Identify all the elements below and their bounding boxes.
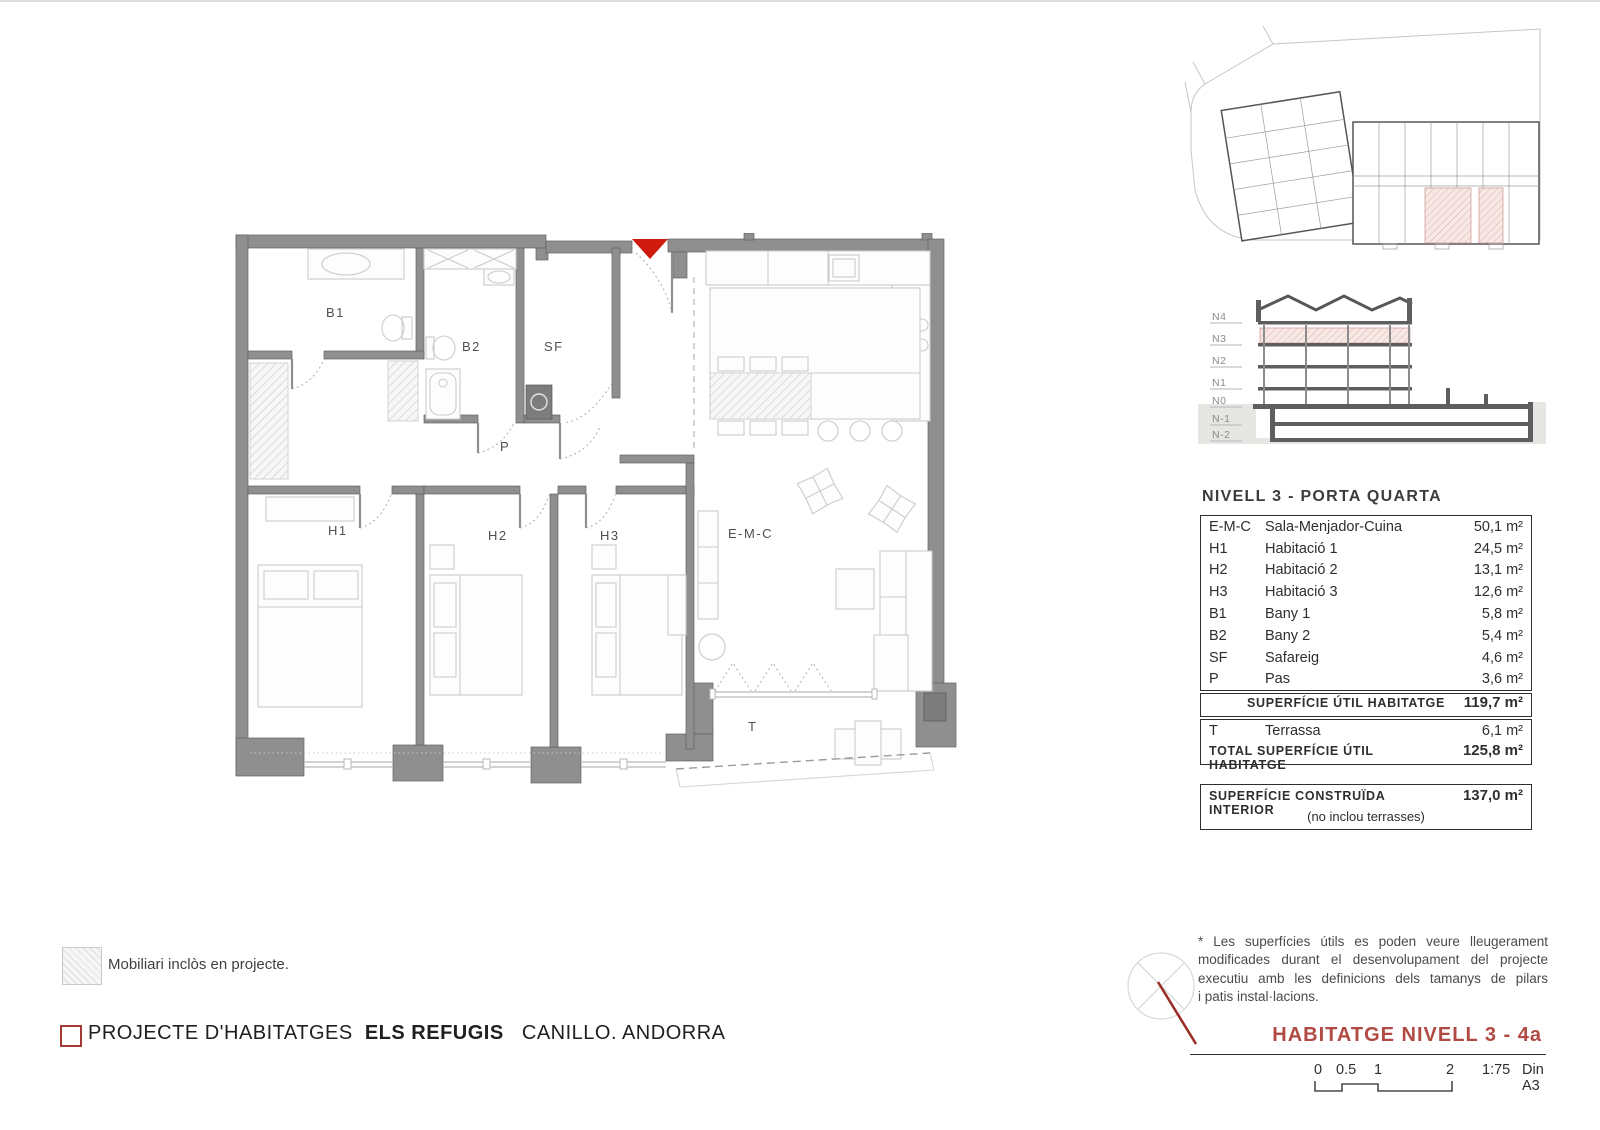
table-row: H2Habitació 213,1 m² — [1201, 560, 1531, 582]
key-plan-highlighted-unit — [1425, 188, 1471, 243]
level-label-n4: N4 — [1212, 311, 1226, 323]
roof-line — [1258, 296, 1412, 310]
bedroom-furniture — [258, 497, 686, 707]
table-row: PPas3,6 m² — [1201, 669, 1531, 691]
scale-ratio: 1:75 — [1482, 1062, 1510, 1078]
floor-plan: B1 B2 SF P H1 H2 H3 E-M-C T — [228, 233, 960, 795]
table-row: SFSafareig4,6 m² — [1201, 647, 1531, 669]
project-title-name: ELS REFUGIS — [365, 1022, 504, 1044]
level-label-n2: N2 — [1212, 355, 1226, 367]
built-area-box: SUPERFÍCIE CONSTRUÏDA INTERIOR 137,0 m² … — [1200, 784, 1532, 830]
area-table: NIVELL 3 - PORTA QUARTA E-M-CSala-Menjad… — [1200, 488, 1532, 830]
table-row: E-M-CSala-Menjador-Cuina50,1 m² — [1201, 516, 1531, 538]
built-area-row: SUPERFÍCIE CONSTRUÏDA INTERIOR 137,0 m² — [1209, 787, 1523, 809]
level-label-n3: N3 — [1212, 333, 1226, 345]
table-row: T Terrassa 6,1 m² — [1201, 720, 1531, 742]
room-label-b1: B1 — [326, 305, 345, 320]
table-row: B1Bany 15,8 m² — [1201, 603, 1531, 625]
room-label-p: P — [500, 439, 510, 454]
key-plan-left-wing — [1221, 92, 1360, 241]
bath-fixtures — [308, 249, 552, 419]
room-label-h1: H1 — [328, 523, 348, 538]
building-section: N4 N3 N2 N1 N0 N-1 N-2 — [1198, 286, 1546, 446]
scale-mark-05: 0.5 — [1336, 1062, 1356, 1078]
graphic-scale-icon — [1314, 1080, 1459, 1094]
sheet-top-edge — [0, 0, 1600, 2]
drawing-sheet: B1 B2 SF P H1 H2 H3 E-M-C T — [0, 0, 1600, 1130]
area-table-title: NIVELL 3 - PORTA QUARTA — [1202, 488, 1532, 506]
subtotal-row: SUPERFÍCIE ÚTIL HABITATGE 119,7 m² — [1200, 693, 1532, 717]
table-row: H3Habitació 312,6 m² — [1201, 581, 1531, 603]
project-title-main: PROJECTE D'HABITATGES — [88, 1022, 353, 1044]
kitchen — [706, 251, 930, 441]
room-label-h2: H2 — [488, 528, 508, 543]
section-highlight-n3 — [1260, 328, 1410, 343]
legend-text: Mobiliari inclòs en projecte. — [108, 956, 289, 973]
level-label-n1: N1 — [1212, 377, 1226, 389]
media-cabinet — [698, 511, 718, 619]
scale-mark-2: 2 — [1446, 1062, 1454, 1078]
room-label-sf: SF — [544, 339, 564, 354]
dining-table-hatch — [710, 373, 811, 419]
project-title-location: CANILLO. ANDORRA — [522, 1022, 726, 1044]
area-table-rooms: E-M-CSala-Menjador-Cuina50,1 m² H1Habita… — [1200, 515, 1532, 691]
bed-h1 — [258, 565, 362, 707]
scale-bar: 0 0.5 1 2 1:75 Din A3 — [1190, 1060, 1546, 1094]
room-label-t: T — [748, 719, 757, 734]
level-label-n0: N0 — [1212, 395, 1226, 407]
terrace-total-box: T Terrassa 6,1 m² TOTAL SUPERFÍCIE ÚTIL … — [1200, 719, 1532, 765]
sheet-title: HABITATGE NIVELL 3 - 4a — [1190, 1024, 1542, 1047]
coffee-table — [836, 569, 874, 609]
furniture-hatch-swatch — [62, 947, 102, 985]
wardrobe-hatch-corridor — [388, 361, 418, 421]
washing-machine — [526, 385, 552, 419]
living-furniture — [698, 461, 932, 691]
window-wall — [250, 753, 666, 769]
room-label-b2: B2 — [462, 339, 481, 354]
scale-mark-1: 1 — [1374, 1062, 1382, 1078]
table-row: B2Bany 25,4 m² — [1201, 625, 1531, 647]
total-row: TOTAL SUPERFÍCIE ÚTIL HABITATGE 125,8 m² — [1201, 742, 1531, 764]
level-label-n-1: N-1 — [1212, 413, 1230, 425]
level-label-n-2: N-2 — [1212, 429, 1230, 441]
scale-mark-0: 0 — [1314, 1062, 1322, 1078]
wardrobe-hatch-left — [250, 363, 288, 479]
surface-disclaimer: * Les superfícies útils es poden veure l… — [1198, 933, 1548, 1006]
paper-format: Din A3 — [1522, 1062, 1546, 1094]
entry-arrow — [632, 239, 668, 259]
key-plan — [1183, 22, 1551, 254]
room-label-h3: H3 — [600, 528, 620, 543]
title-square-icon — [60, 1025, 82, 1047]
project-title: PROJECTE D'HABITATGES ELS REFUGIS CANILL… — [88, 1022, 725, 1045]
title-rule — [1190, 1054, 1546, 1055]
table-row: H1Habitació 124,5 m² — [1201, 538, 1531, 560]
room-label-emc: E-M-C — [728, 526, 773, 541]
